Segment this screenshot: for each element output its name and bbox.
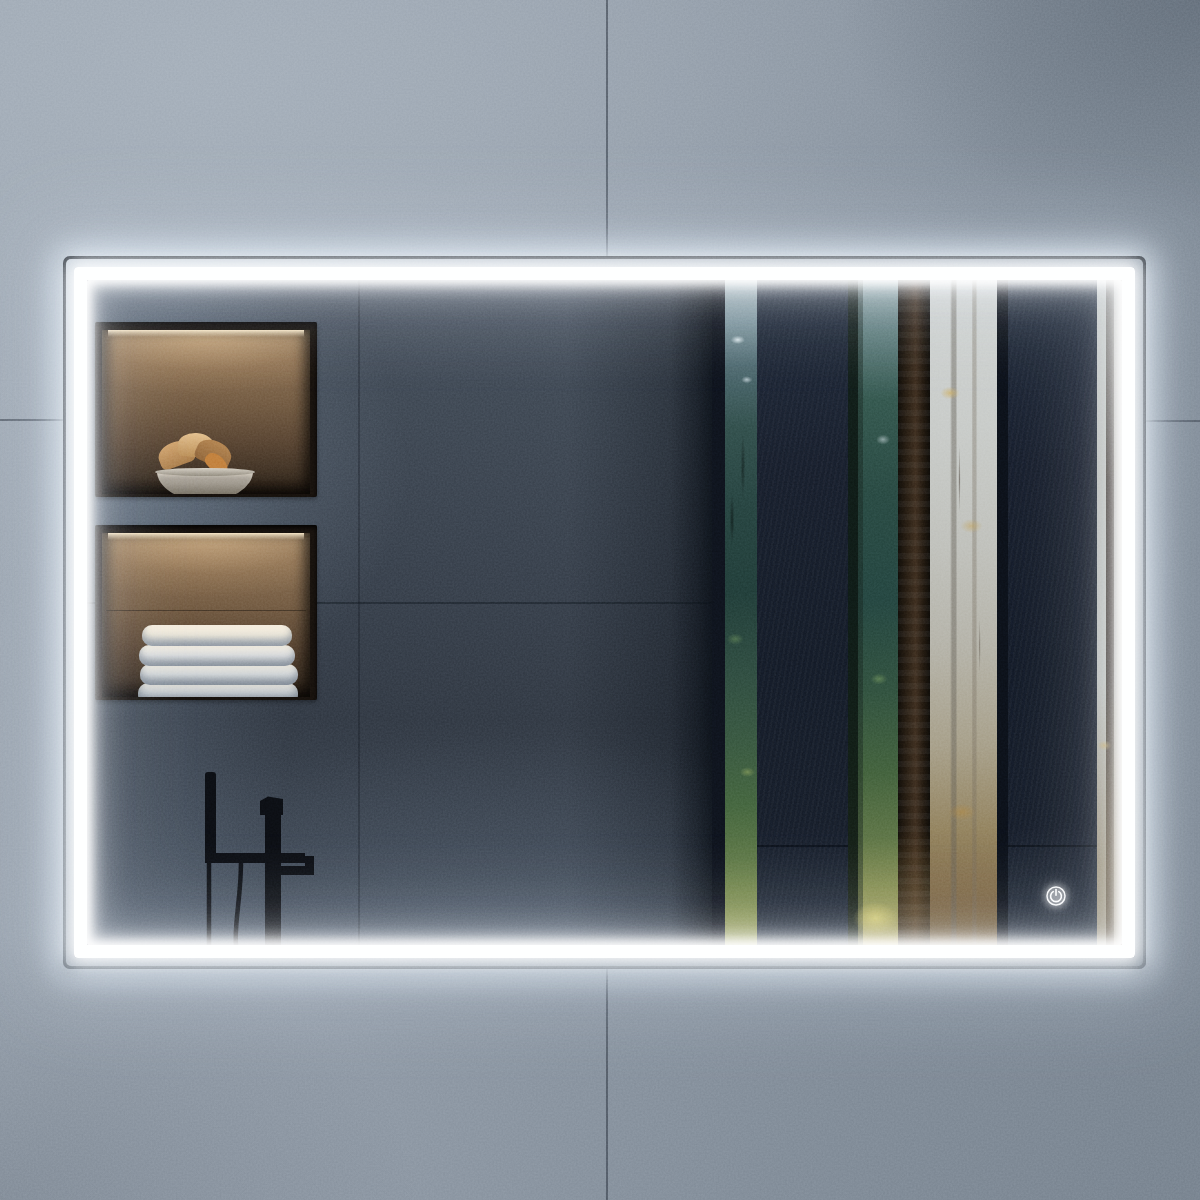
wall-seam-horizontal-right bbox=[1145, 420, 1200, 422]
reflection-niche-decor bbox=[95, 322, 317, 497]
misty-forest-strip bbox=[930, 280, 997, 945]
slat-gap-shadow bbox=[997, 280, 1008, 945]
reflection-wall-seam-vertical bbox=[358, 280, 360, 945]
niche-interior bbox=[102, 533, 310, 697]
wall-seam-vertical-bottom bbox=[606, 968, 608, 1200]
wall-to-window-shadow bbox=[670, 280, 712, 945]
folded-towel bbox=[140, 664, 298, 685]
forest-view-strip bbox=[725, 280, 757, 945]
folded-towel bbox=[138, 683, 298, 697]
tree-trunk-strip bbox=[898, 280, 930, 945]
led-mirror bbox=[63, 256, 1146, 969]
reflection-niche-towels bbox=[95, 525, 317, 700]
folded-towel bbox=[139, 645, 295, 666]
product-photo-scene bbox=[0, 0, 1200, 1200]
folded-towel bbox=[142, 625, 292, 646]
dark-slat-panel bbox=[757, 280, 848, 945]
niche-interior bbox=[102, 330, 310, 494]
mirror-glass-reflection bbox=[87, 280, 1122, 945]
stone-bowl bbox=[157, 471, 253, 494]
niche-led-light bbox=[108, 533, 304, 540]
wall-seam-vertical-top bbox=[606, 0, 608, 258]
forest-view-strip bbox=[1097, 280, 1122, 945]
forest-view-strip bbox=[848, 280, 898, 945]
reflection-window-slats bbox=[712, 280, 1122, 945]
power-icon bbox=[1038, 878, 1074, 914]
niche-led-light bbox=[108, 330, 304, 337]
niche-wall-seam bbox=[106, 610, 306, 611]
dark-slat-panel bbox=[1008, 280, 1097, 945]
wall-seam-horizontal-left bbox=[0, 419, 64, 421]
power-touch-button[interactable] bbox=[1038, 878, 1074, 914]
